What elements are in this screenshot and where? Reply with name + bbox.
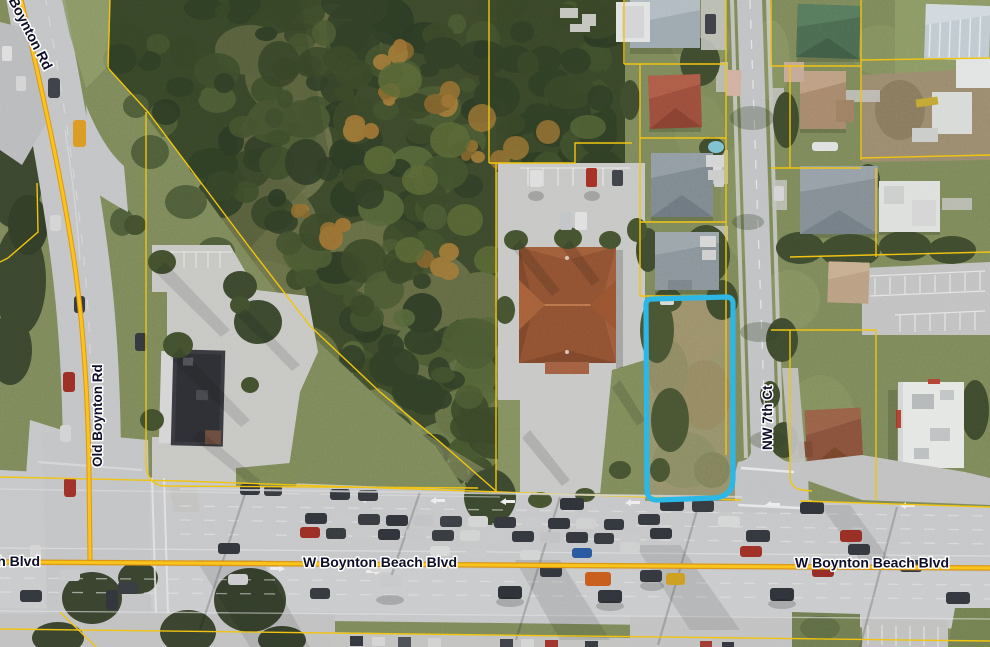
svg-text:W Boynton Beach Blvd: W Boynton Beach Blvd [0, 553, 40, 569]
svg-text:W Boynton Beach Blvd: W Boynton Beach Blvd [795, 555, 949, 571]
svg-text:Old Boynton Rd: Old Boynton Rd [90, 364, 105, 467]
svg-text:NW 7th Ct: NW 7th Ct [760, 385, 775, 450]
svg-text:W Boynton Beach Blvd: W Boynton Beach Blvd [303, 554, 457, 570]
